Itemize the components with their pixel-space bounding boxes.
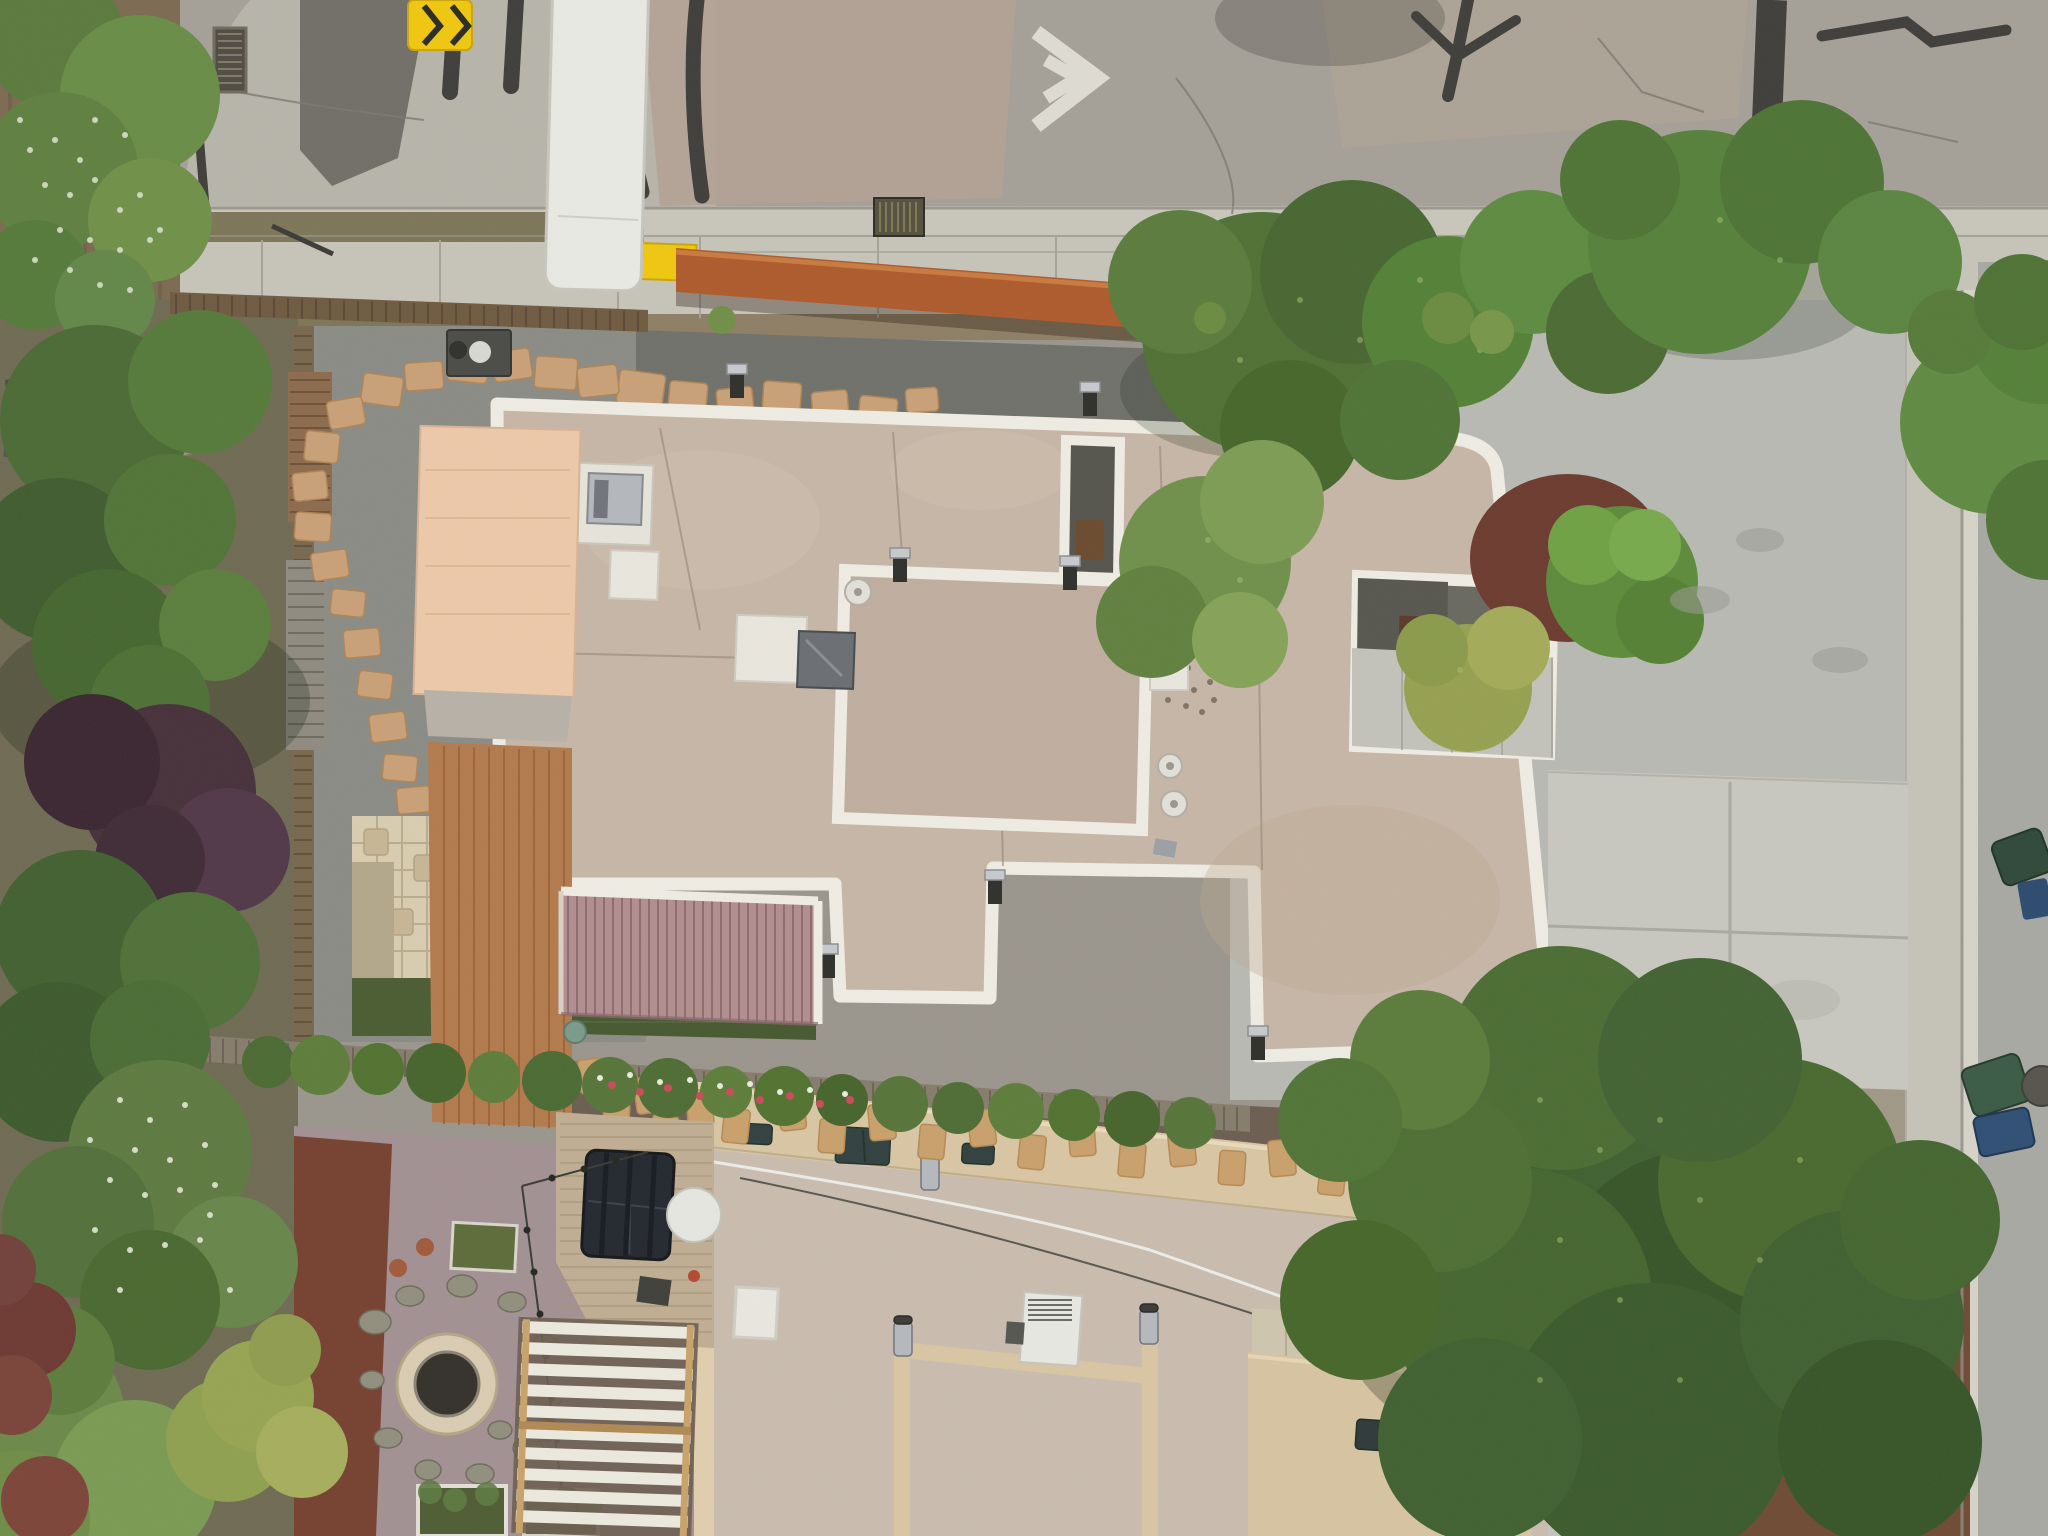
aerial-photo: [0, 0, 2048, 1536]
atmosphere: [0, 0, 2048, 1536]
aerial-photo-canvas: [0, 0, 2048, 1536]
photo-grain: [0, 0, 2048, 1536]
